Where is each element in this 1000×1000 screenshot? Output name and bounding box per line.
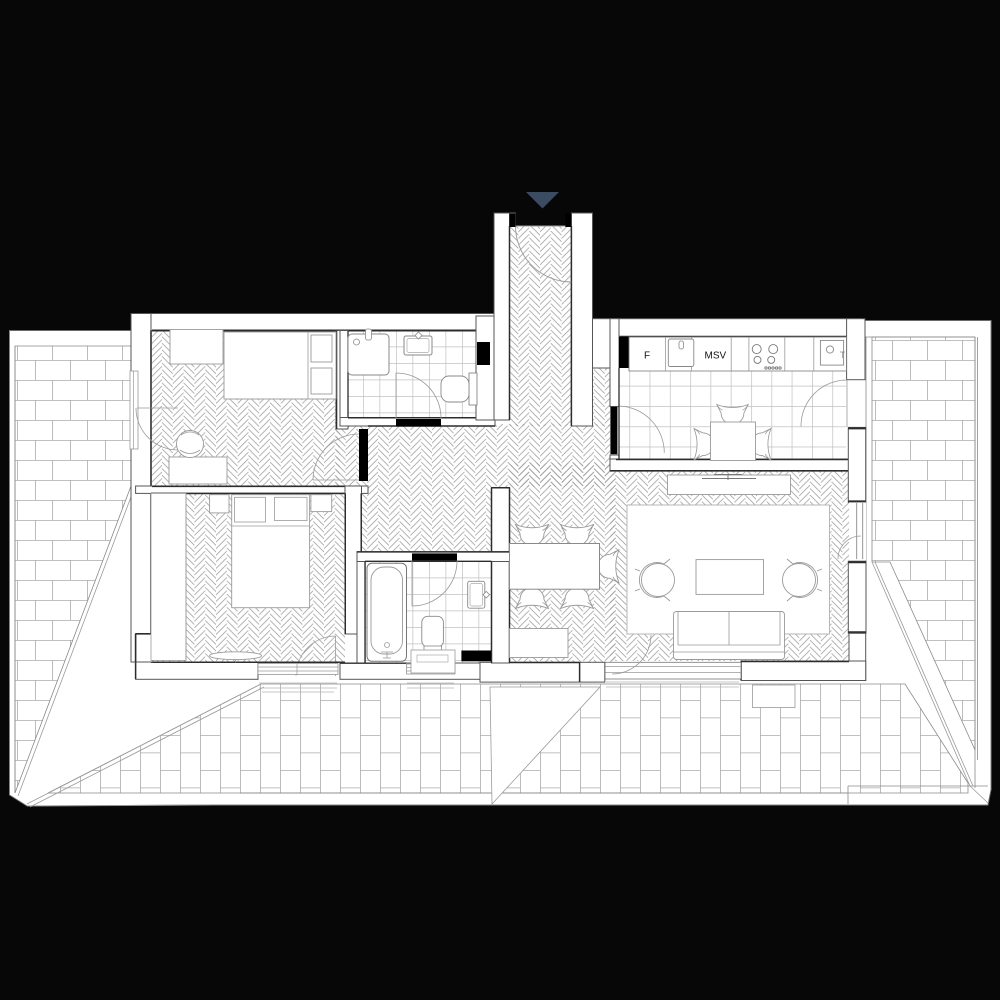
svg-text:MSV: MSV [705,351,727,362]
svg-text:F: F [644,351,650,362]
